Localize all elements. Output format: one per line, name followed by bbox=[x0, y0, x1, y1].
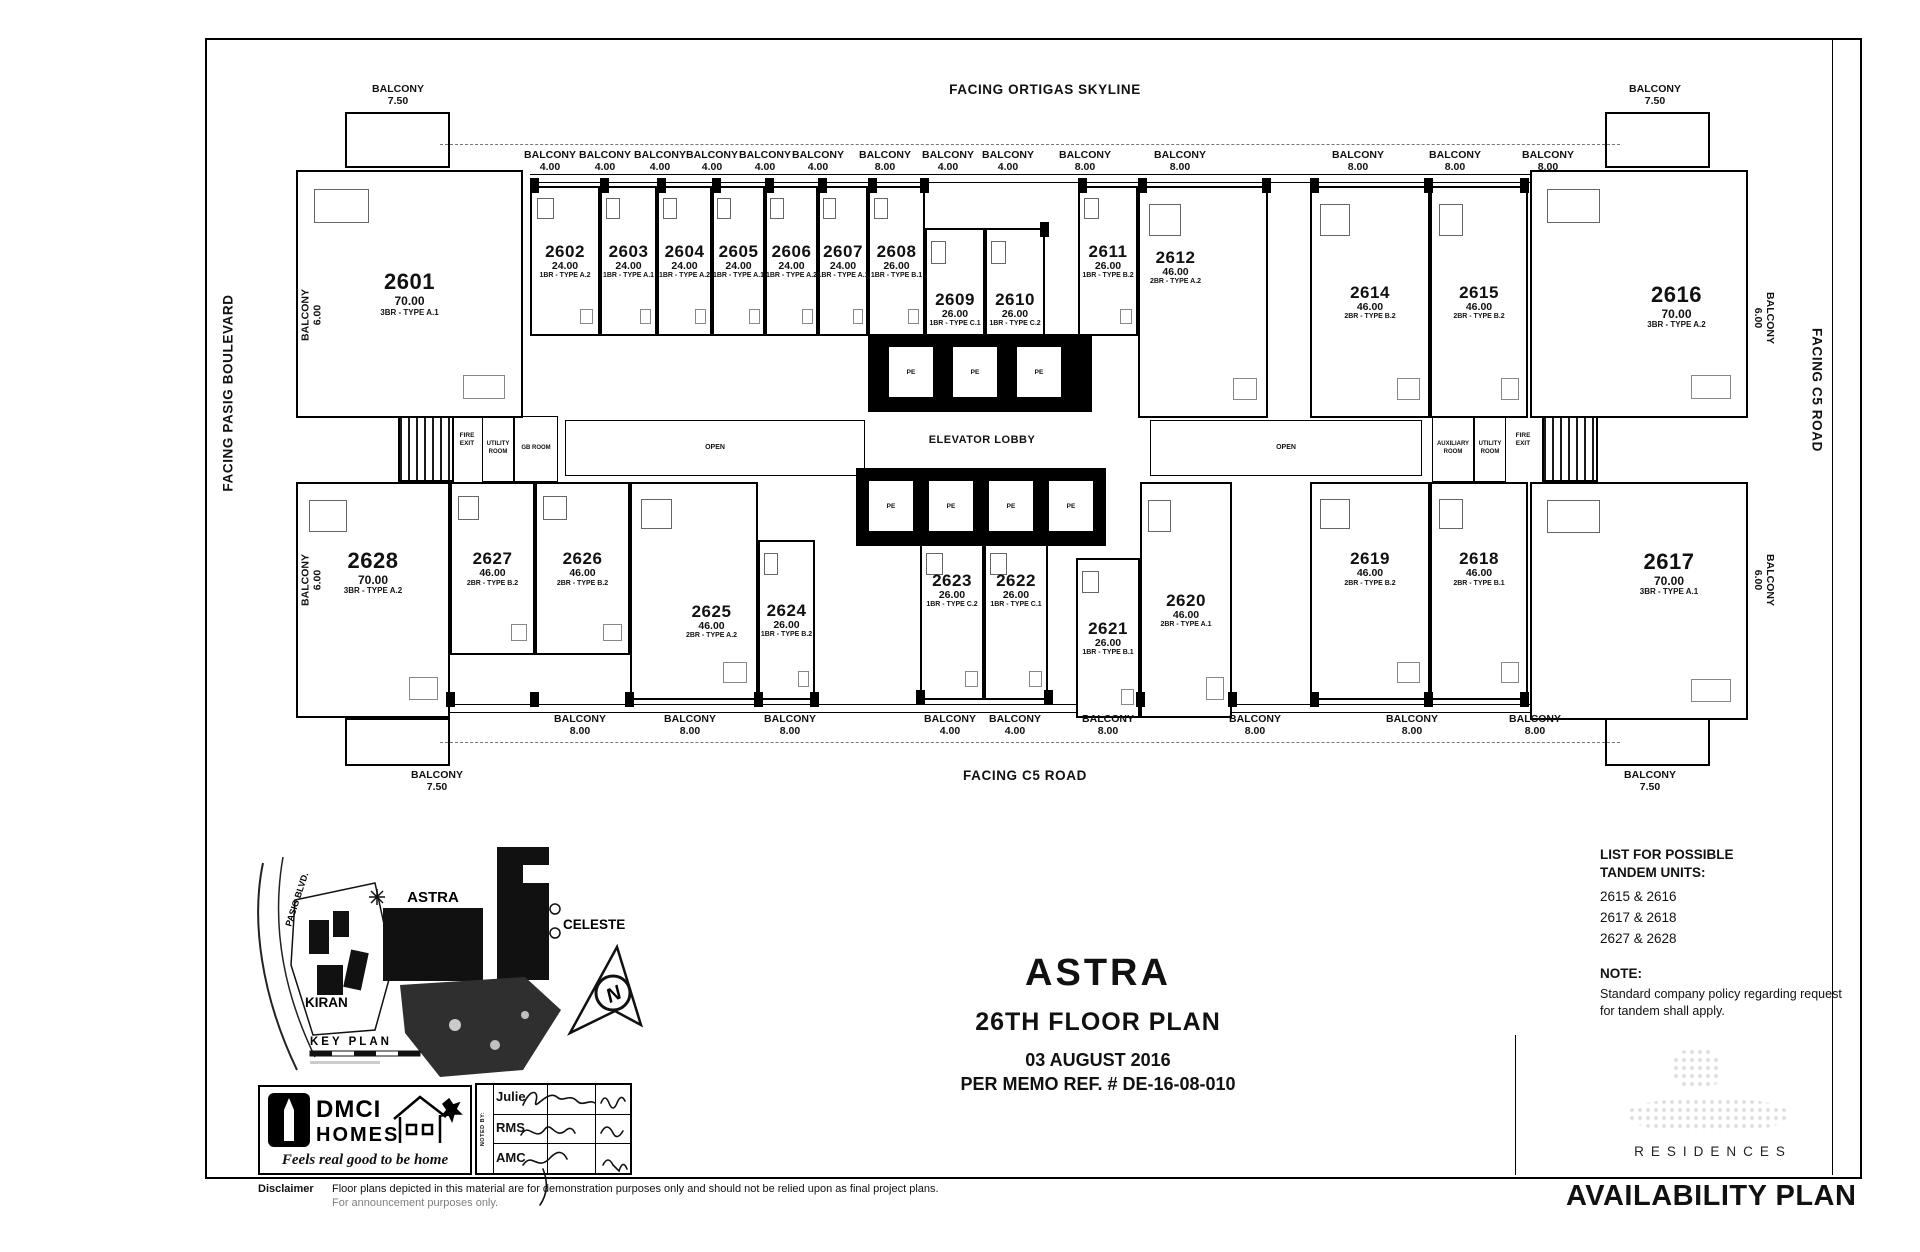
utility-room-right: UTILITY ROOM bbox=[1474, 416, 1506, 482]
key-plan-astra-label: ASTRA bbox=[407, 889, 459, 906]
utility-room-left: UTILITY ROOM bbox=[482, 416, 514, 482]
auxiliary-room: AUXILIARY ROOM bbox=[1432, 416, 1474, 482]
balcony-label: BALCONY4.00 bbox=[686, 150, 738, 174]
facing-c5-right-label: FACING C5 ROAD bbox=[1810, 328, 1825, 452]
column bbox=[1310, 178, 1319, 193]
facing-pasig-label: FACING PASIG BOULEVARD bbox=[221, 294, 236, 491]
column bbox=[1262, 178, 1271, 193]
unit-2623: 262326.001BR - TYPE C.2 bbox=[920, 540, 984, 700]
key-plan-celeste-label: CELESTE bbox=[563, 917, 625, 932]
fire-exit-label-left: FIRE EXIT bbox=[452, 432, 482, 449]
column bbox=[1424, 178, 1433, 193]
balcony-label: BALCONY8.00 bbox=[664, 714, 716, 738]
svg-text:HOMES: HOMES bbox=[316, 1124, 399, 1146]
elevator-pe: PE bbox=[988, 480, 1034, 532]
balcony-label: BALCONY7.50 bbox=[372, 84, 424, 108]
column bbox=[625, 692, 634, 707]
unit-2603: 260324.001BR - TYPE A.1 bbox=[600, 186, 657, 336]
balcony-label: BALCONY6.00 bbox=[300, 554, 324, 606]
column bbox=[1310, 692, 1319, 707]
balcony-edge-line bbox=[530, 182, 1530, 183]
faint-logo-wordmark bbox=[1628, 1098, 1788, 1132]
floor-plan-scan-page: FACING ORTIGAS SKYLINE FACING C5 ROAD FA… bbox=[0, 0, 1920, 1252]
noted-by-label: NOTED BY: bbox=[480, 1112, 486, 1146]
open-area-right: OPEN bbox=[1150, 420, 1422, 476]
balcony-label: BALCONY4.00 bbox=[792, 150, 844, 174]
signature-scribbles bbox=[493, 1083, 643, 1213]
availability-plan-title: AVAILABILITY PLAN bbox=[1566, 1180, 1856, 1213]
unit-2615: 261546.002BR - TYPE B.2 bbox=[1430, 186, 1528, 418]
unit-2604: 260424.001BR - TYPE A.2 bbox=[657, 186, 712, 336]
elevator-pe: PE bbox=[928, 480, 974, 532]
balcony-label: BALCONY4.00 bbox=[634, 150, 686, 174]
unit-2620: 262046.002BR - TYPE A.1 bbox=[1140, 482, 1232, 718]
column bbox=[754, 692, 763, 707]
balcony-label: BALCONY8.00 bbox=[1386, 714, 1438, 738]
balcony-label: BALCONY6.00 bbox=[1751, 554, 1775, 606]
column bbox=[1136, 692, 1145, 707]
balcony-label: BALCONY8.00 bbox=[554, 714, 606, 738]
balcony-label: BALCONY4.00 bbox=[989, 714, 1041, 738]
balcony-label: BALCONY6.00 bbox=[1751, 292, 1775, 344]
open-area-left: OPEN bbox=[565, 420, 865, 476]
balcony-label: BALCONY8.00 bbox=[1509, 714, 1561, 738]
svg-text:DMCI: DMCI bbox=[316, 1096, 381, 1123]
balcony-label: BALCONY8.00 bbox=[1059, 150, 1111, 174]
column bbox=[765, 178, 774, 193]
floor-title: 26TH FLOOR PLAN bbox=[975, 1008, 1221, 1037]
north-arrow-icon: N bbox=[570, 947, 641, 1033]
column bbox=[1228, 692, 1237, 707]
landscape-area bbox=[400, 977, 561, 1077]
balcony-label: BALCONY8.00 bbox=[1229, 714, 1281, 738]
project-title: ASTRA bbox=[1025, 952, 1171, 995]
unit-2618: 261846.002BR - TYPE B.1 bbox=[1430, 482, 1528, 700]
balcony-label: BALCONY4.00 bbox=[739, 150, 791, 174]
corner-balcony bbox=[1605, 112, 1710, 168]
disclaimer-label: Disclaimer bbox=[258, 1183, 314, 1195]
unit-2624: 262426.001BR - TYPE B.2 bbox=[758, 540, 815, 700]
faint-logo-mark bbox=[1672, 1048, 1722, 1090]
balcony-label: BALCONY7.50 bbox=[411, 770, 463, 794]
elevator-pe: PE bbox=[868, 480, 914, 532]
balcony-label: BALCONY8.00 bbox=[1082, 714, 1134, 738]
balcony-label: BALCONY4.00 bbox=[922, 150, 974, 174]
balcony-label: BALCONY4.00 bbox=[982, 150, 1034, 174]
balcony-label: BALCONY6.00 bbox=[300, 289, 324, 341]
note-heading: NOTE: bbox=[1600, 966, 1642, 981]
column bbox=[818, 178, 827, 193]
dmci-homes-logo: DMCI HOMES bbox=[266, 1091, 476, 1153]
column bbox=[1040, 222, 1049, 237]
residences-cell-divider bbox=[1515, 1035, 1516, 1175]
balcony-label: BALCONY4.00 bbox=[924, 714, 976, 738]
balcony-label: BALCONY4.00 bbox=[524, 150, 576, 174]
residences-label: RESIDENCES bbox=[1634, 1144, 1792, 1159]
house-sketch-icon bbox=[394, 1097, 461, 1143]
balcony-label: BALCONY8.00 bbox=[764, 714, 816, 738]
column bbox=[530, 692, 539, 707]
column bbox=[600, 178, 609, 193]
column bbox=[1078, 178, 1087, 193]
dimension-line bbox=[440, 144, 1620, 145]
pasig-blvd-label: PASIG BLVD. bbox=[283, 871, 310, 928]
column bbox=[1044, 690, 1053, 705]
dmci-tagline: Feels real good to be home bbox=[262, 1152, 468, 1169]
tandem-list-heading: LIST FOR POSSIBLE TANDEM UNITS: bbox=[1600, 846, 1750, 881]
unit-2614: 261446.002BR - TYPE B.2 bbox=[1310, 186, 1430, 418]
dimension-line bbox=[440, 742, 1620, 743]
unit-2625: 262546.002BR - TYPE A.2 bbox=[630, 482, 758, 700]
balcony-label: BALCONY7.50 bbox=[1624, 770, 1676, 794]
unit-2616: 261670.003BR - TYPE A.2 bbox=[1530, 170, 1748, 418]
tandem-pair: 2627 & 2628 bbox=[1600, 928, 1677, 950]
key-plan-map: ASTRA CELESTE KIRAN PASIG BLVD. KEY PLAN… bbox=[225, 845, 665, 1105]
column bbox=[920, 178, 929, 193]
column bbox=[916, 690, 925, 705]
fire-exit-stair-right bbox=[1542, 416, 1598, 482]
column bbox=[657, 178, 666, 193]
column bbox=[1424, 692, 1433, 707]
astra-building-footprint bbox=[383, 908, 483, 981]
column bbox=[810, 692, 819, 707]
unit-2602: 260224.001BR - TYPE A.2 bbox=[530, 186, 600, 336]
unit-2606: 260624.001BR - TYPE A.2 bbox=[765, 186, 818, 336]
unit-2622: 262226.001BR - TYPE C.1 bbox=[984, 540, 1048, 700]
unit-2621: 262126.001BR - TYPE B.1 bbox=[1076, 558, 1140, 718]
unit-2605: 260524.001BR - TYPE A.1 bbox=[712, 186, 765, 336]
column bbox=[868, 178, 877, 193]
balcony-label: BALCONY4.00 bbox=[579, 150, 631, 174]
corner-balcony bbox=[345, 718, 450, 766]
column bbox=[446, 692, 455, 707]
unit-2608: 260826.001BR - TYPE B.1 bbox=[868, 186, 925, 336]
plan-date: 03 AUGUST 2016 bbox=[1025, 1050, 1170, 1071]
column bbox=[1520, 178, 1529, 193]
balcony-edge-line bbox=[450, 704, 1530, 705]
elevator-pe: PE bbox=[1048, 480, 1094, 532]
unit-2612: 261246.002BR - TYPE A.2 bbox=[1138, 186, 1268, 418]
fire-exit-stair-left bbox=[398, 416, 454, 482]
facing-c5-bottom-label: FACING C5 ROAD bbox=[963, 768, 1087, 783]
balcony-label: BALCONY8.00 bbox=[1332, 150, 1384, 174]
balcony-label: BALCONY7.50 bbox=[1629, 84, 1681, 108]
unit-2617: 261770.003BR - TYPE A.1 bbox=[1530, 482, 1748, 720]
column bbox=[712, 178, 721, 193]
disclaimer-line2: For announcement purposes only. bbox=[332, 1197, 498, 1209]
facing-ortigas-label: FACING ORTIGAS SKYLINE bbox=[949, 82, 1141, 97]
note-body: Standard company policy regarding reques… bbox=[1600, 986, 1845, 1020]
unit-2601: 260170.003BR - TYPE A.1 bbox=[296, 170, 523, 418]
unit-2626: 262646.002BR - TYPE B.2 bbox=[535, 482, 630, 655]
key-plan-kiran-label: KIRAN bbox=[305, 995, 348, 1010]
unit-2611: 261126.001BR - TYPE B.2 bbox=[1078, 186, 1138, 336]
unit-2619: 261946.002BR - TYPE B.2 bbox=[1310, 482, 1430, 700]
memo-reference: PER MEMO REF. # DE-16-08-010 bbox=[960, 1074, 1235, 1095]
balcony-label: BALCONY8.00 bbox=[859, 150, 911, 174]
elevator-pe: PE bbox=[952, 346, 998, 398]
unit-2627: 262746.002BR - TYPE B.2 bbox=[450, 482, 535, 655]
unit-2607: 260724.001BR - TYPE A.1 bbox=[818, 186, 868, 336]
sun-symbol-icon bbox=[369, 889, 385, 905]
corner-balcony bbox=[1605, 718, 1710, 766]
corner-balcony bbox=[345, 112, 450, 168]
elevator-pe: PE bbox=[1016, 346, 1062, 398]
key-plan-title: KEY PLAN bbox=[310, 1036, 392, 1048]
balcony-label: BALCONY8.00 bbox=[1429, 150, 1481, 174]
column bbox=[1138, 178, 1147, 193]
gb-room: GB ROOM bbox=[514, 416, 558, 482]
tandem-pair: 2617 & 2618 bbox=[1600, 907, 1677, 929]
elevator-lobby-label: ELEVATOR LOBBY bbox=[929, 434, 1036, 446]
balcony-edge-line bbox=[530, 174, 1530, 175]
column bbox=[1520, 692, 1529, 707]
fire-exit-label-right: FIRE EXIT bbox=[1508, 432, 1538, 449]
elevator-pe: PE bbox=[888, 346, 934, 398]
column bbox=[530, 178, 539, 193]
balcony-label: BALCONY8.00 bbox=[1522, 150, 1574, 174]
tandem-pair: 2615 & 2616 bbox=[1600, 886, 1677, 908]
balcony-label: BALCONY8.00 bbox=[1154, 150, 1206, 174]
